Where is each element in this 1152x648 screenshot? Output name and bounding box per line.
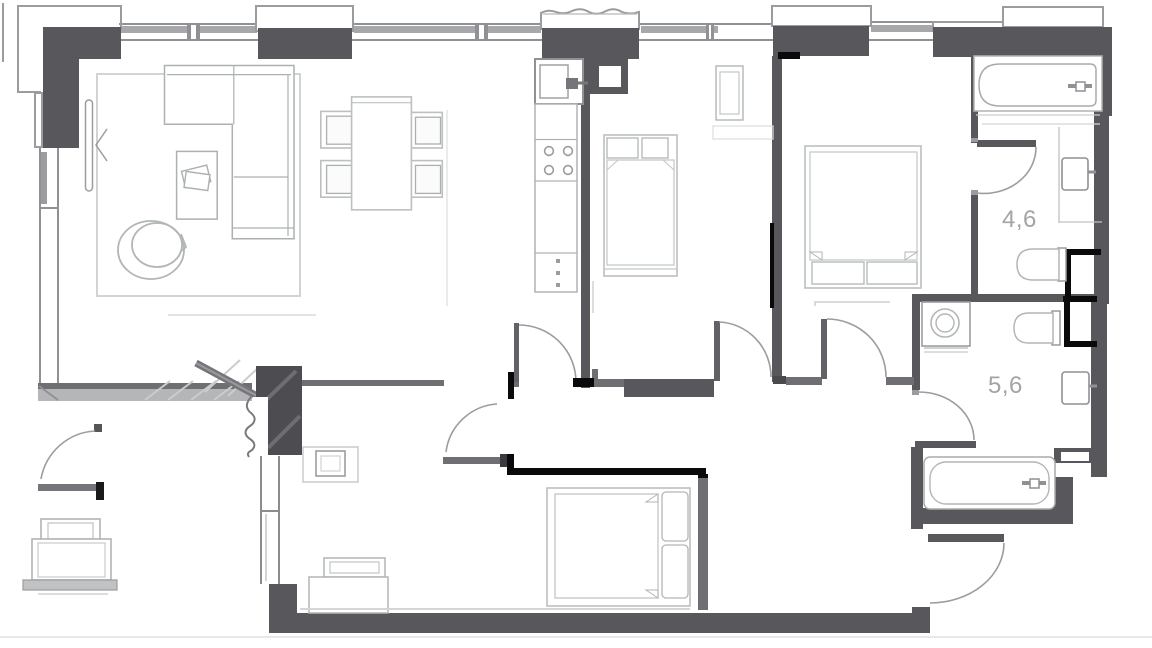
- svg-text:4,6: 4,6: [1002, 206, 1037, 233]
- svg-text:5,6: 5,6: [988, 372, 1023, 399]
